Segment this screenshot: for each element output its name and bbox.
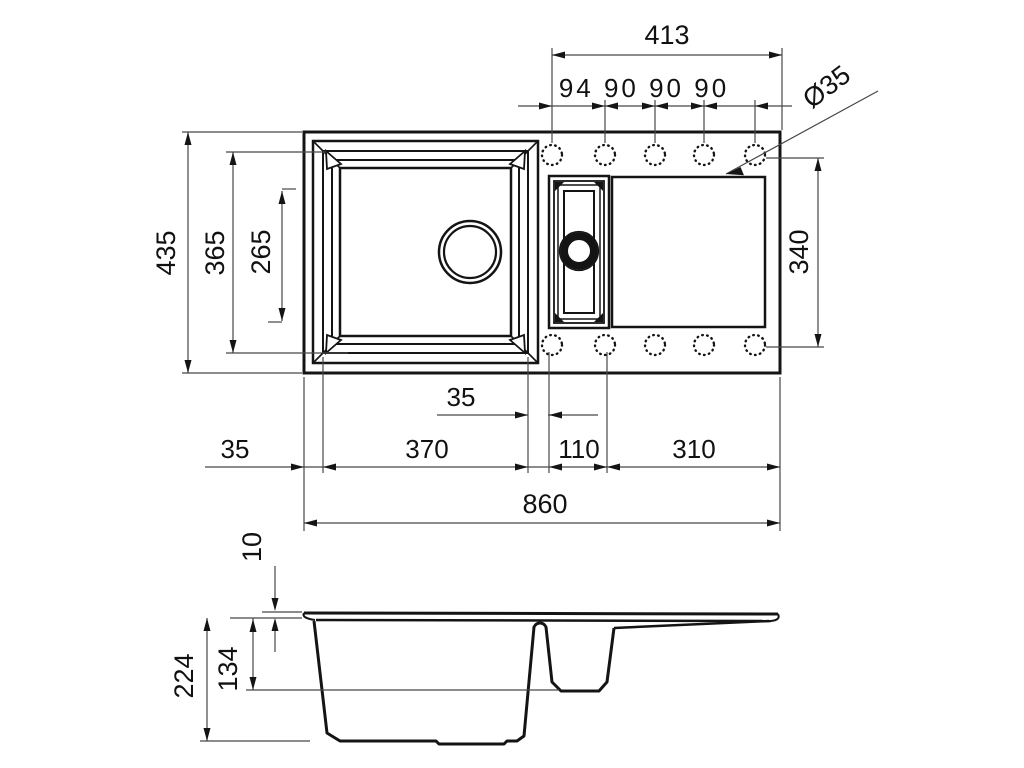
sink-technical-drawing: 413 94 90 90 90 Ø35 435 365 26: [0, 0, 1024, 768]
top-view: [304, 132, 780, 373]
dims-section: 10 134 224: [169, 532, 559, 741]
half-bowl: [549, 176, 609, 328]
dim-gap-35: 35: [447, 382, 476, 412]
dim-hole-spacing: 94 90 90 90: [559, 73, 729, 103]
dim-860: 860: [522, 489, 567, 519]
section-bowl-profile: [314, 621, 614, 744]
dim-224: 224: [169, 653, 199, 698]
dim-310: 310: [672, 434, 715, 464]
main-bowl: [313, 141, 538, 363]
dim-370: 370: [405, 434, 448, 464]
section-view: [303, 613, 778, 744]
dim-110: 110: [558, 434, 599, 464]
dims-top: 413 94 90 90 90 Ø35: [518, 20, 878, 175]
dims-left: 435 365 265: [151, 132, 348, 373]
dim-10: 10: [237, 532, 267, 562]
half-bowl-drain: [564, 236, 594, 266]
drawing-canvas: 413 94 90 90 90 Ø35 435 365 26: [0, 0, 1024, 768]
dim-margin-35: 35: [221, 434, 250, 464]
dim-hole-diameter: Ø35: [797, 59, 856, 114]
dim-265: 265: [246, 229, 276, 274]
main-drain: [439, 221, 501, 283]
dims-bottom: 35 35 370 110 310 860: [205, 352, 780, 531]
dim-413: 413: [644, 20, 689, 50]
dim-340: 340: [784, 229, 814, 274]
dim-435: 435: [151, 230, 181, 275]
dim-365: 365: [200, 230, 230, 275]
dim-134: 134: [213, 646, 243, 691]
dims-right: 340: [766, 158, 824, 347]
drainer-area: [612, 177, 765, 327]
